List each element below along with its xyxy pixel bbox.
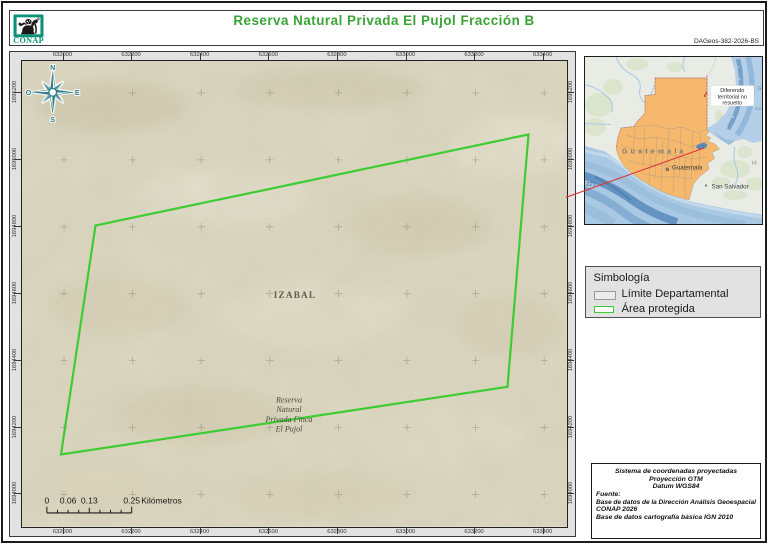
svg-text:O: O (25, 88, 31, 97)
svg-text:H o: H o (752, 160, 762, 167)
svg-text:S: S (50, 115, 55, 124)
svg-text:0.13: 0.13 (80, 496, 97, 506)
svg-text:Reserva: Reserva (274, 396, 301, 405)
svg-text:Guatemala: Guatemala (622, 148, 687, 155)
svg-text:CONAP: CONAP (13, 36, 44, 44)
svg-text:ma: ma (755, 106, 762, 111)
svg-text:221: 221 (585, 182, 596, 188)
svg-text:Kilómetros: Kilómetros (141, 496, 182, 506)
svg-text:territorial no: territorial no (717, 94, 746, 100)
svg-text:resuelto: resuelto (722, 100, 742, 106)
svg-text:Diferendo: Diferendo (720, 88, 744, 94)
svg-text:0.25: 0.25 (123, 496, 140, 506)
svg-text:IZABAL: IZABAL (273, 290, 315, 300)
svg-text:E: E (74, 88, 79, 97)
svg-text:El Pujol: El Pujol (274, 425, 303, 434)
svg-text:N: N (50, 63, 55, 72)
svg-text:0.06: 0.06 (59, 496, 76, 506)
svg-text:Privada Finca: Privada Finca (264, 415, 312, 424)
svg-text:Natural: Natural (275, 405, 302, 414)
svg-text:Guatemala: Guatemala (672, 164, 703, 171)
svg-text:San Salvador: San Salvador (711, 183, 748, 190)
svg-text:G: G (757, 86, 761, 92)
svg-text:0: 0 (44, 496, 49, 506)
